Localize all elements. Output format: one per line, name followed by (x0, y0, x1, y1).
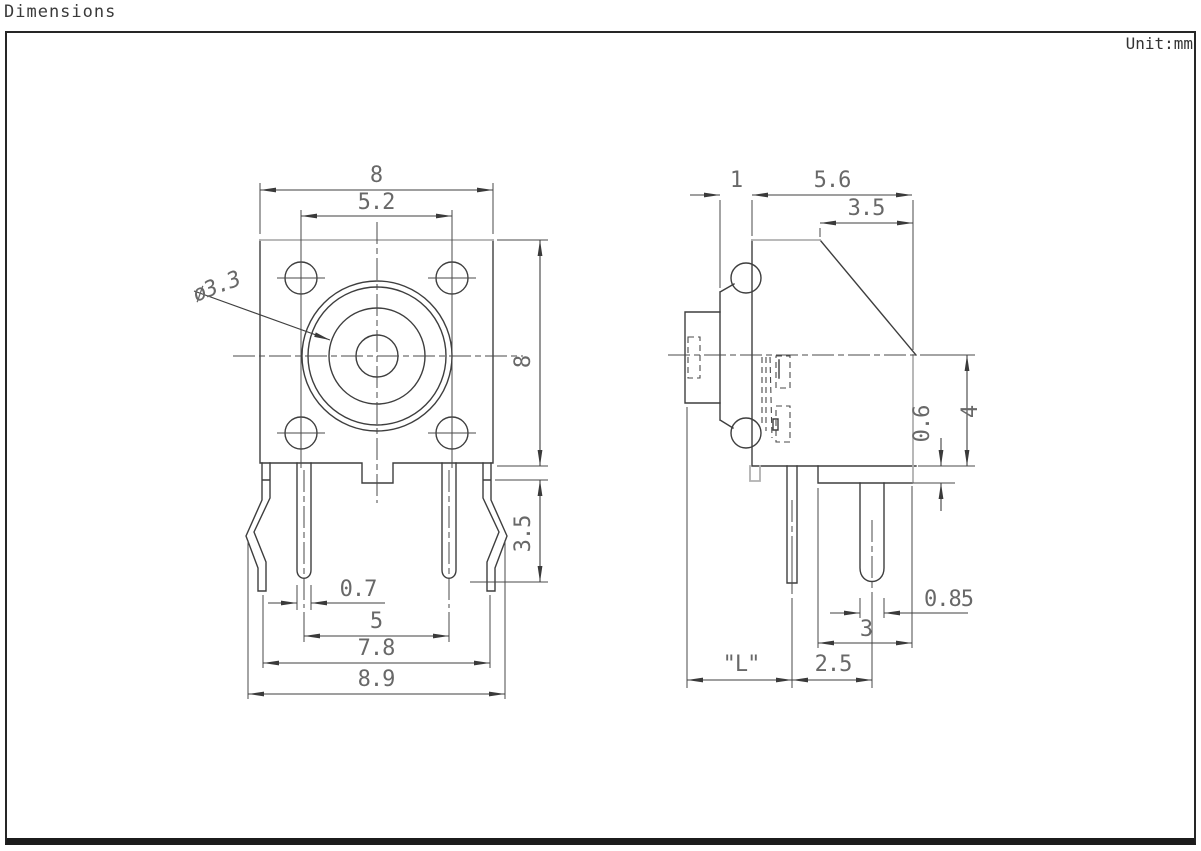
drawing-sheet: Dimensions Unit:mm (0, 0, 1201, 851)
dim-front-body-height: 8 (511, 356, 536, 368)
dim-front-pin-pitch: 5 (370, 609, 382, 634)
dim-front-body-width: 8 (370, 163, 382, 188)
front-centerlines (233, 222, 523, 503)
side-body-step (818, 466, 912, 483)
front-view (233, 210, 523, 608)
dim-front-button-diameter: ø3.3 (189, 267, 244, 308)
dim-side-body-depth: 5.6 (814, 168, 851, 193)
side-internal-hidden-lines (762, 356, 790, 442)
side-body-gray-edges (750, 240, 913, 482)
side-view-dimensions: 1 5.6 3.5 4 0.6 0.85 3 2.5 "L" (687, 168, 983, 680)
side-extension-lines (687, 407, 912, 688)
dim-side-bezel-thickness: 1 (730, 168, 742, 193)
dim-front-hole-spacing: 5.2 (358, 190, 395, 215)
dim-side-chamfer-depth: 3.5 (848, 196, 885, 221)
dim-front-overall-width: 8.9 (358, 667, 395, 692)
dim-side-stem-length: "L" (723, 652, 760, 677)
side-boss-top (731, 263, 761, 293)
dim-front-pin-width: 0.7 (340, 577, 377, 602)
side-button-hidden (688, 337, 700, 378)
side-view (668, 240, 958, 688)
dim-side-pin-diameter: 0.85 (924, 587, 973, 612)
dim-side-step-height: 0.6 (910, 406, 935, 443)
side-boss-bottom (731, 418, 761, 448)
dim-side-pin-setback: 2.5 (815, 652, 852, 677)
side-bezel (720, 284, 734, 428)
side-body-outline (752, 240, 916, 466)
bent-leg-left (246, 463, 270, 591)
side-internal-solid-bits (773, 360, 779, 430)
side-button-stem (685, 312, 720, 403)
dim-side-lower-height: 4 (958, 405, 983, 418)
bent-leg-right (483, 463, 507, 591)
dimension-drawing: 8 5.2 ø3.3 8 3.5 0.7 5 7.8 8.9 (0, 0, 1201, 851)
dim-side-step-depth: 3 (860, 617, 872, 642)
dim-front-pin-length: 3.5 (511, 516, 536, 553)
dim-front-leg-span: 7.8 (358, 636, 395, 661)
